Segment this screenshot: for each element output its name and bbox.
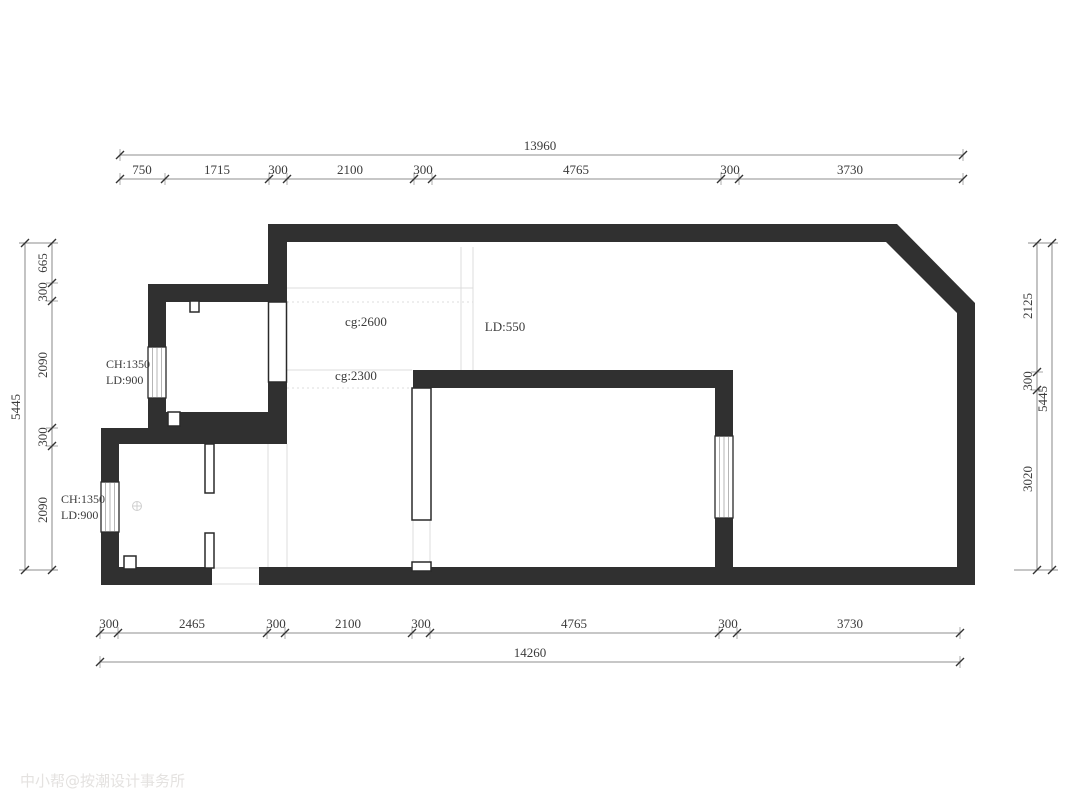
dim-left-seg: 300 [35,282,50,302]
ceiling-height-label: cg:2600 [345,314,387,329]
wall-segment [268,224,287,302]
dim-bottom-seg: 3730 [837,616,863,631]
outlined-wall [269,302,287,382]
dim-right-seg: 3020 [1020,466,1035,492]
wall-notch [190,301,199,312]
wall-segment [101,428,287,444]
window-upper-left [148,347,166,398]
dim-left-seg: 2090 [35,497,50,523]
wall-segment [268,382,287,428]
wall-segment [101,532,119,585]
dim-right-seg: 2125 [1020,293,1035,319]
ceiling-height-label: cg:2300 [335,368,377,383]
dim-top-seg: 3730 [837,162,863,177]
watermark-text: 中小帮@按潮设计事务所 [20,772,185,790]
dim-left-total: 5445 [8,394,23,420]
floor-plan-drawing: 13960 750 1715 300 2100 300 4765 300 373… [0,0,1080,810]
wall-segment [715,518,733,568]
dim-top-seg: 300 [413,162,433,177]
wall-segment [270,224,897,242]
window-sill-label: CH:1350 [61,492,105,506]
wall-segment [715,388,733,436]
dim-left-seg: 665 [35,253,50,273]
dim-top-seg: 4765 [563,162,589,177]
dim-right-seg: 300 [1020,371,1035,391]
dim-top-seg: 2100 [337,162,363,177]
wall-segment [413,370,733,388]
dim-top-seg: 1715 [204,162,230,177]
walls [101,224,975,585]
floor-plan-canvas: 13960 750 1715 300 2100 300 4765 300 373… [0,0,1080,810]
lowered-ceiling-label: LD:550 [485,319,525,334]
dim-bottom-seg: 2465 [179,616,205,631]
dim-right-total: 5445 [1035,386,1050,412]
wall-segment [259,567,975,585]
dim-bottom-seg: 300 [266,616,286,631]
wall-segment [957,303,975,585]
outlined-wall [205,533,214,568]
dim-top-seg: 300 [720,162,740,177]
wall-notch [124,556,136,569]
window-sill-label: LD:900 [106,373,143,387]
outlined-wall [412,388,431,520]
wall-notch [168,412,180,426]
room-labels: cg:2600 LD:550 cg:2300 CH:1350 LD:900 CH… [61,314,525,522]
dim-left-seg: 2090 [35,352,50,378]
dim-bottom-seg: 4765 [561,616,587,631]
dim-top-seg: 750 [132,162,152,177]
window-sill-label: LD:900 [61,508,98,522]
dim-bottom-seg: 300 [99,616,119,631]
dim-top-seg: 300 [268,162,288,177]
fixture-symbol-icon [133,502,142,511]
window-lower-left [101,482,119,532]
window-bedroom-right [715,436,733,518]
outlined-wall [205,444,214,493]
window-sill-label: CH:1350 [106,357,150,371]
dim-bottom-seg: 300 [718,616,738,631]
wall-segment [148,398,166,428]
outlined-wall [412,562,431,571]
dim-top-total: 13960 [524,138,557,153]
dim-bottom-seg: 300 [411,616,431,631]
dim-left-seg: 300 [35,427,50,447]
wall-diagonal [886,224,975,313]
dim-bottom-total: 14260 [514,645,547,660]
dim-bottom-seg: 2100 [335,616,361,631]
wall-segment [148,284,287,302]
